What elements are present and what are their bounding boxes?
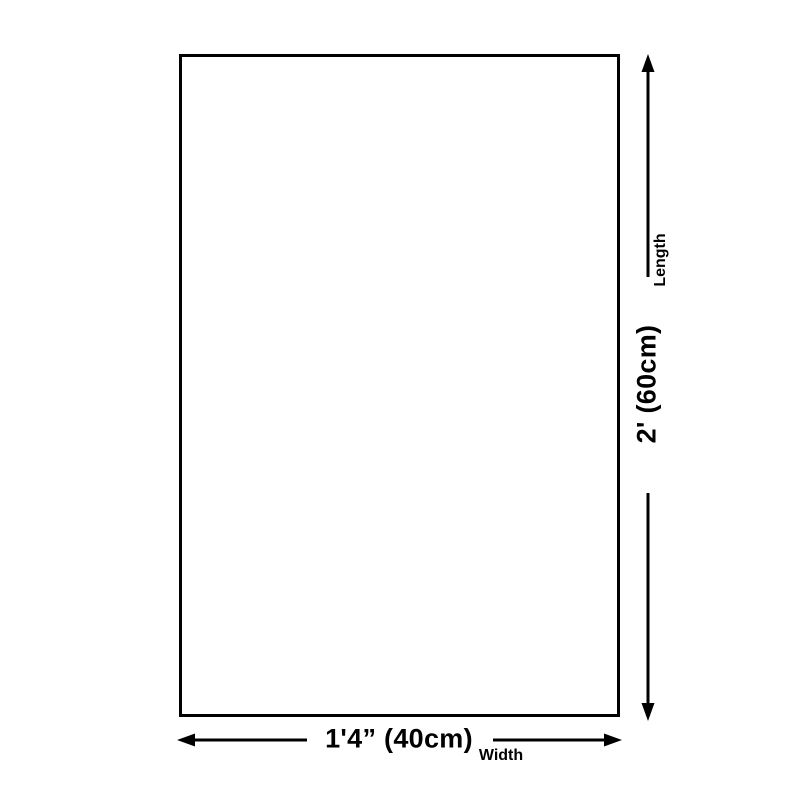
width-arrow-right-head-icon <box>604 734 622 747</box>
length-label: Length <box>653 233 669 286</box>
product-outline <box>179 54 620 717</box>
length-arrow-down-head-icon <box>642 703 655 721</box>
length-arrow-up-head-icon <box>642 54 655 72</box>
length-value: 2' (60cm) <box>634 325 661 444</box>
width-label: Width <box>479 748 523 764</box>
width-arrow-left-head-icon <box>177 734 195 747</box>
dimension-diagram: 1'4” (40cm) Width 2' (60cm) Length <box>0 0 800 800</box>
width-value: 1'4” (40cm) <box>325 726 473 753</box>
